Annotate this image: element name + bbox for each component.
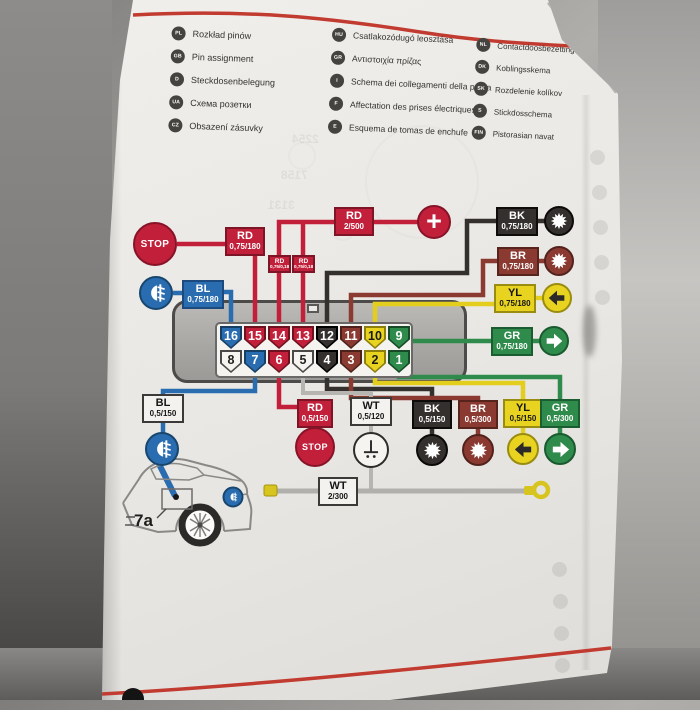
car-bumper-line — [227, 494, 247, 497]
pin-number: 3 — [348, 353, 355, 371]
wire-label-bk-top: BK0,75/180 — [496, 207, 538, 236]
car-connection-box — [162, 489, 192, 509]
wire-spec: 0,75/0,18 — [294, 265, 313, 270]
wire-label-bk-bottom: BK0,5/150 — [412, 400, 452, 429]
wire-label-gr-top: GR0,75/180 — [491, 327, 533, 356]
br-burst-icon-lower — [462, 434, 494, 466]
wire-label-rd-mini-2: RD0,75/0,18 — [292, 255, 315, 273]
showthrough-text: 7158 — [281, 168, 308, 182]
showthrough-dot — [552, 562, 567, 577]
wire-spec: 0,75/180 — [227, 243, 263, 252]
language-item: FINPistorasian navat — [471, 121, 570, 148]
wire-spec: 2/300 — [320, 493, 356, 502]
stop-sign-icon-lower: STOP — [295, 427, 335, 467]
wire-spec: 0,5/150 — [299, 415, 331, 424]
car-reference-label: 7a — [134, 511, 153, 531]
language-code-badge: SK — [474, 81, 489, 96]
stop-text: STOP — [141, 239, 170, 250]
wire-label-yl-bottom: YL0,5/150 — [503, 399, 543, 428]
language-code-badge: DK — [475, 59, 490, 74]
language-label: Pin assignment — [192, 51, 254, 63]
wire-label-rd-top: RD0,75/180 — [225, 227, 265, 256]
language-code-badge: PL — [171, 26, 185, 40]
car-window — [151, 464, 204, 480]
language-code-badge: FIN — [471, 125, 486, 140]
wire-label-gr-bottom: GR0,5/300 — [540, 399, 580, 428]
language-code-badge: I — [330, 73, 345, 88]
br-burst-icon — [544, 246, 574, 276]
car-foglamp-icon — [224, 488, 243, 507]
showthrough-text: 3131 — [268, 198, 295, 212]
connector-terminal-square — [264, 485, 277, 496]
ground-glyph — [358, 437, 384, 463]
right-arrow-icon — [539, 326, 569, 356]
language-label: Obsazení zásuvky — [189, 120, 263, 133]
car-wheel-hub — [197, 522, 202, 527]
wire-spec: 0,5/300 — [460, 416, 496, 425]
language-list-middle: HUCsatlakozódugó leosztása GRΑντιστοιχία… — [328, 23, 494, 145]
language-code-badge: S — [473, 103, 488, 118]
ground-icon — [353, 432, 389, 468]
pin-number: 1 — [396, 353, 403, 371]
wire-label-wt-bottom: WT0,5/120 — [350, 397, 392, 426]
language-list-left: PLRozkład pinów GBPin assignment DSteckd… — [168, 21, 277, 140]
showthrough-dot — [554, 626, 569, 641]
ring-terminal-icon — [534, 483, 548, 497]
showthrough-dot — [595, 290, 610, 305]
language-label: Stickdosschema — [494, 107, 553, 119]
wire-blue-into-car — [159, 464, 175, 496]
ring-terminal-collar — [524, 486, 534, 495]
language-label: Koblingsskema — [496, 63, 551, 75]
language-item: CZObsazení zásuvky — [168, 113, 274, 140]
car-ref-leader-line — [157, 509, 166, 518]
wire-spec: 0,5/150 — [144, 410, 182, 419]
foglamp-icon — [139, 276, 173, 310]
car-wheel-arch — [176, 507, 224, 531]
page-smudge — [583, 305, 596, 357]
language-label: Rozkład pinów — [192, 28, 251, 40]
wire-label-br-bottom: BR0,5/300 — [458, 400, 498, 429]
wire-spec: 0,5/120 — [352, 413, 390, 422]
car-wire-terminal-dot — [173, 494, 179, 500]
left-arrow-glyph — [512, 438, 535, 461]
pin-number: 9 — [396, 329, 403, 347]
wire-spec: 2/500 — [336, 223, 372, 232]
left-arrow-icon-lower — [507, 433, 539, 465]
car-deck-line — [204, 475, 241, 481]
language-code-badge: D — [170, 72, 184, 86]
pin-number: 13 — [296, 329, 310, 347]
connector-notch — [307, 304, 319, 313]
language-label: Schema dei collegamenti della presa — [351, 76, 492, 92]
wire-label-yl-top: YL0,75/180 — [494, 284, 536, 313]
language-code-badge: CZ — [168, 118, 182, 132]
pin-number: 15 — [248, 329, 262, 347]
wire-spec: 0,75/180 — [496, 300, 534, 309]
language-label: Pistorasian navat — [493, 129, 555, 141]
language-code-badge: NL — [476, 37, 491, 52]
wire-spec: 0,5/150 — [505, 415, 541, 424]
burst-glyph — [421, 439, 444, 462]
showthrough-dot — [594, 255, 609, 270]
pin-number: 14 — [272, 329, 286, 347]
showthrough-dot — [592, 185, 607, 200]
pin-number: 10 — [368, 329, 382, 347]
wire-label-bl-bottom: BL0,5/150 — [142, 394, 184, 423]
wire-spec: 0,75/180 — [184, 296, 222, 305]
photo-of-manual-page: 2254 7158 3131 PLRozkład pinów GBPin ass… — [0, 0, 700, 700]
stop-text: STOP — [302, 442, 328, 452]
foglamp-glyph — [149, 436, 175, 462]
pin-number: 5 — [300, 353, 307, 371]
language-label: Esquema de tomas de enchufe — [349, 122, 468, 137]
plus-battery-icon: + — [417, 205, 451, 239]
showthrough-dot — [590, 150, 605, 165]
wire-spec: 0,5/300 — [542, 415, 578, 424]
foglamp-icon-lower — [145, 432, 179, 466]
showthrough-dot — [553, 594, 568, 609]
language-label: Схема розетки — [190, 97, 252, 109]
pin-number: 2 — [372, 353, 379, 371]
language-list-right: NLContactdoosbezetting DKKoblingsskema S… — [471, 34, 575, 149]
burst-glyph — [467, 439, 490, 462]
language-code-badge: E — [328, 119, 343, 134]
bk-burst-icon-lower — [416, 434, 448, 466]
burst-glyph — [548, 250, 570, 272]
language-label: Affectation des prises électriques — [350, 99, 476, 114]
pin-number: 6 — [276, 353, 283, 371]
wire-label-wt-ground: WT2/300 — [318, 477, 358, 506]
wire-label-rd-mini-1: RD0,75/0,18 — [268, 255, 291, 273]
page-number-bullet — [122, 688, 144, 710]
wire-spec: 0,75/180 — [499, 263, 537, 272]
car-wheel-spokes — [190, 513, 210, 537]
showthrough-dot — [555, 658, 570, 673]
wire-label-rd-supply: RD2/500 — [334, 207, 374, 236]
pin-number: 11 — [344, 329, 357, 347]
language-label: Rozdelenie kolíkov — [495, 85, 563, 98]
burst-glyph — [548, 210, 570, 232]
right-arrow-icon-lower — [544, 433, 576, 465]
pin-number: 12 — [320, 329, 334, 347]
pin-number: 16 — [224, 329, 238, 347]
car-wheel-icon — [182, 507, 218, 543]
left-arrow-glyph — [546, 287, 568, 309]
background-left — [0, 0, 112, 700]
wire-label-br-top: BR0,75/180 — [497, 247, 539, 276]
wire-spec: 0,75/180 — [498, 223, 536, 232]
car-foglamp-glyph — [231, 493, 238, 502]
foglamp-glyph — [143, 280, 169, 306]
pin-number: 4 — [324, 353, 331, 371]
wire-spec: 0,75/0,18 — [270, 265, 289, 270]
wire-label-bl-top: BL0,75/180 — [182, 280, 224, 309]
bk-burst-icon — [544, 206, 574, 236]
language-label: Αντιστοιχία πρίζας — [352, 53, 422, 66]
showthrough-circle — [288, 142, 316, 170]
showthrough-dot — [593, 220, 608, 235]
page-crease — [581, 95, 591, 670]
wire-spec: 0,75/180 — [493, 343, 531, 352]
right-arrow-glyph — [549, 438, 572, 461]
language-code-badge: HU — [332, 27, 347, 42]
wire-label-rd-bottom: RD0,5/150 — [297, 399, 333, 428]
pin-number: 8 — [228, 353, 235, 371]
pin-number: 7 — [252, 353, 259, 371]
language-code-badge: UA — [169, 95, 183, 109]
language-code-badge: GR — [331, 50, 346, 65]
right-arrow-glyph — [543, 330, 565, 352]
language-label: Contactdoosbezetting — [497, 41, 575, 54]
language-code-badge: GB — [171, 49, 185, 63]
language-label: Csatlakozódugó leosztása — [353, 30, 454, 44]
wire-spec: 0,5/150 — [414, 416, 450, 425]
language-label: Steckdosenbelegung — [191, 74, 275, 87]
language-code-badge: F — [329, 96, 344, 111]
stop-sign-icon: STOP — [133, 222, 177, 266]
left-arrow-icon — [542, 283, 572, 313]
